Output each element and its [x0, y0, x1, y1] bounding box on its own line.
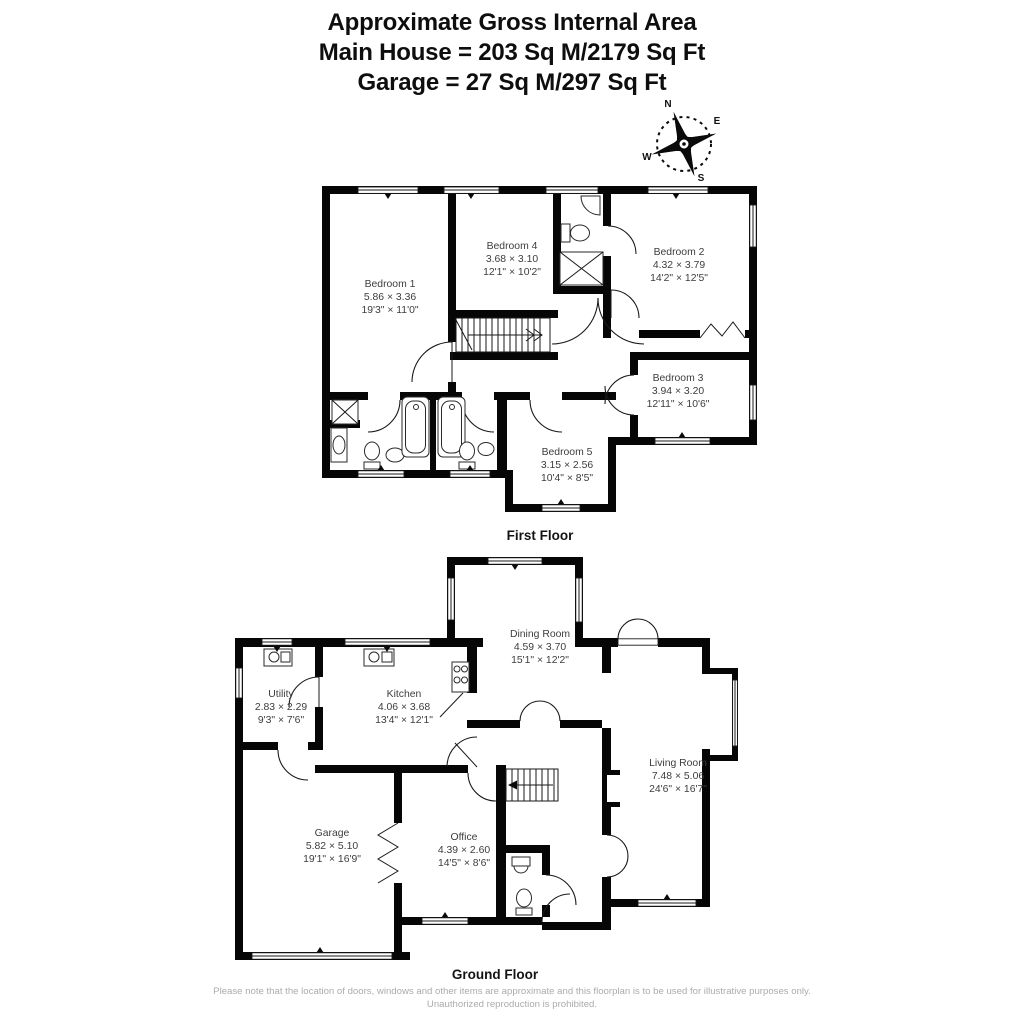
shower-icon [332, 400, 358, 424]
sink-icon [386, 448, 404, 462]
svg-text:Bedroom 2: Bedroom 2 [654, 247, 705, 258]
compass-north-label: N [664, 99, 671, 110]
counter-edge [440, 693, 463, 717]
svg-text:3.68 × 3.10: 3.68 × 3.10 [486, 254, 539, 265]
sink-icon [331, 428, 347, 462]
compass-rose: N E S W [641, 99, 727, 187]
svg-text:3.15 × 2.56: 3.15 × 2.56 [541, 460, 594, 471]
toilet-icon [561, 224, 590, 242]
svg-text:7.48 × 5.06: 7.48 × 5.06 [652, 771, 705, 782]
svg-text:Living Room: Living Room [649, 758, 707, 769]
room-bedroom-5: Bedroom 5 3.15 × 2.56 10'4" × 8'5" [541, 447, 594, 484]
svg-text:4.32 × 3.79: 4.32 × 3.79 [653, 260, 706, 271]
svg-text:24'6" × 16'7": 24'6" × 16'7" [649, 784, 707, 795]
hob-icon [452, 662, 469, 692]
compass-west-label: W [642, 152, 652, 163]
room-bedroom-3: Bedroom 3 3.94 × 3.20 12'11" × 10'6" [647, 373, 710, 410]
room-utility: Utility 2.83 × 2.29 9'3" × 7'6" [255, 689, 308, 726]
compass-south-label: S [698, 173, 705, 184]
floorplan-page: Approximate Gross Internal Area Main Hou… [0, 0, 1024, 1024]
wall-break-icon [378, 823, 398, 883]
toilet-icon [459, 442, 475, 469]
room-kitchen: Kitchen 4.06 × 3.68 13'4" × 12'1" [375, 689, 433, 726]
svg-text:13'4" × 12'1": 13'4" × 12'1" [375, 715, 433, 726]
svg-text:Bedroom 5: Bedroom 5 [542, 447, 593, 458]
svg-text:19'1" × 16'9": 19'1" × 16'9" [303, 854, 361, 865]
room-office: Office 4.39 × 2.60 14'5" × 8'6" [438, 832, 491, 869]
stairs-icon [506, 769, 558, 801]
first-floor-label: First Floor [507, 528, 574, 543]
svg-text:5.82 × 5.10: 5.82 × 5.10 [306, 841, 359, 852]
disclaimer-text: Please note that the location of doors, … [192, 986, 832, 1011]
room-dining: Dining Room 4.59 × 3.70 15'1" × 12'2" [510, 629, 570, 666]
ground-floor-plan: Dining Room 4.59 × 3.70 15'1" × 12'2" Ut… [235, 557, 738, 982]
svg-text:Bedroom 1: Bedroom 1 [365, 279, 416, 290]
svg-text:15'1" × 12'2": 15'1" × 12'2" [511, 655, 569, 666]
room-living: Living Room 7.48 × 5.06 24'6" × 16'7" [649, 758, 707, 795]
casement-window-icon [700, 322, 745, 338]
room-bedroom-2: Bedroom 2 4.32 × 3.79 14'2" × 12'5" [650, 247, 708, 284]
sink-icon [264, 649, 292, 666]
gf-fixtures [264, 649, 620, 915]
first-floor-plan: Bedroom 1 5.86 × 3.36 19'3" × 11'0" Bedr… [322, 186, 757, 543]
svg-text:12'1" × 10'2": 12'1" × 10'2" [483, 267, 541, 278]
sink-icon [364, 649, 394, 666]
svg-text:Kitchen: Kitchen [387, 689, 422, 700]
svg-text:Bedroom 3: Bedroom 3 [653, 373, 704, 384]
svg-text:Office: Office [451, 832, 478, 843]
room-garage: Garage 5.82 × 5.10 19'1" × 16'9" [303, 828, 361, 865]
svg-text:5.86 × 3.36: 5.86 × 3.36 [364, 292, 417, 303]
ff-stairs [456, 318, 550, 352]
corner-sink-icon [581, 196, 600, 215]
gf-stairs [506, 769, 558, 801]
svg-text:12'11" × 10'6": 12'11" × 10'6" [647, 399, 710, 410]
svg-text:2.83 × 2.29: 2.83 × 2.29 [255, 702, 308, 713]
shower-icon [560, 252, 603, 285]
sink-icon [478, 443, 494, 456]
svg-text:Utility: Utility [268, 689, 294, 700]
ff-fixtures [331, 196, 603, 469]
room-bedroom-1: Bedroom 1 5.86 × 3.36 19'3" × 11'0" [361, 279, 418, 316]
svg-text:14'2" × 12'5": 14'2" × 12'5" [650, 273, 708, 284]
sink-icon [512, 857, 530, 873]
svg-text:4.59 × 3.70: 4.59 × 3.70 [514, 642, 567, 653]
svg-text:Dining Room: Dining Room [510, 629, 570, 640]
room-bedroom-4: Bedroom 4 3.68 × 3.10 12'1" × 10'2" [483, 241, 541, 278]
floorplan-drawing: N E S W [0, 0, 1024, 1024]
compass-east-label: E [714, 116, 721, 127]
toilet-icon [516, 889, 532, 915]
svg-text:10'4" × 8'5": 10'4" × 8'5" [541, 473, 593, 484]
svg-text:Bedroom 4: Bedroom 4 [487, 241, 538, 252]
bathtub-icon [402, 397, 429, 457]
stairs-icon [456, 318, 550, 352]
svg-text:19'3" × 11'0": 19'3" × 11'0" [361, 305, 418, 316]
svg-text:14'5" × 8'6": 14'5" × 8'6" [438, 858, 490, 869]
svg-text:4.06 × 3.68: 4.06 × 3.68 [378, 702, 431, 713]
fireplace-icon [602, 770, 620, 807]
ground-floor-label: Ground Floor [452, 967, 539, 982]
svg-text:3.94 × 3.20: 3.94 × 3.20 [652, 386, 705, 397]
toilet-icon [364, 442, 380, 469]
svg-text:4.39 × 2.60: 4.39 × 2.60 [438, 845, 491, 856]
svg-text:9'3" × 7'6": 9'3" × 7'6" [258, 715, 305, 726]
svg-text:Garage: Garage [315, 828, 350, 839]
